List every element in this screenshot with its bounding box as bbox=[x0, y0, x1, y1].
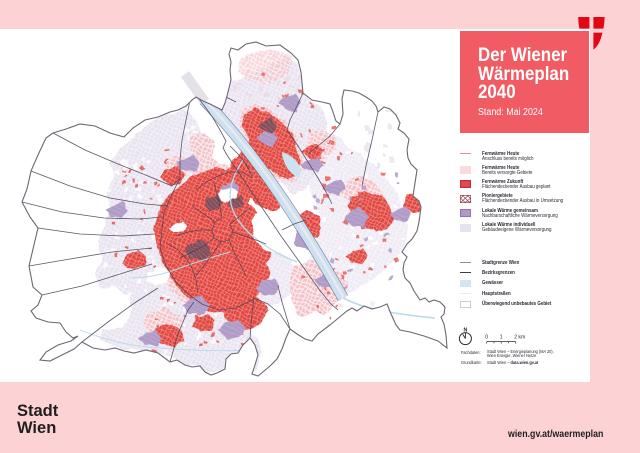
svg-text:km: km bbox=[518, 335, 525, 341]
svg-text:0: 0 bbox=[485, 335, 488, 341]
svg-text:2: 2 bbox=[514, 335, 517, 341]
svg-text:1: 1 bbox=[500, 335, 503, 341]
